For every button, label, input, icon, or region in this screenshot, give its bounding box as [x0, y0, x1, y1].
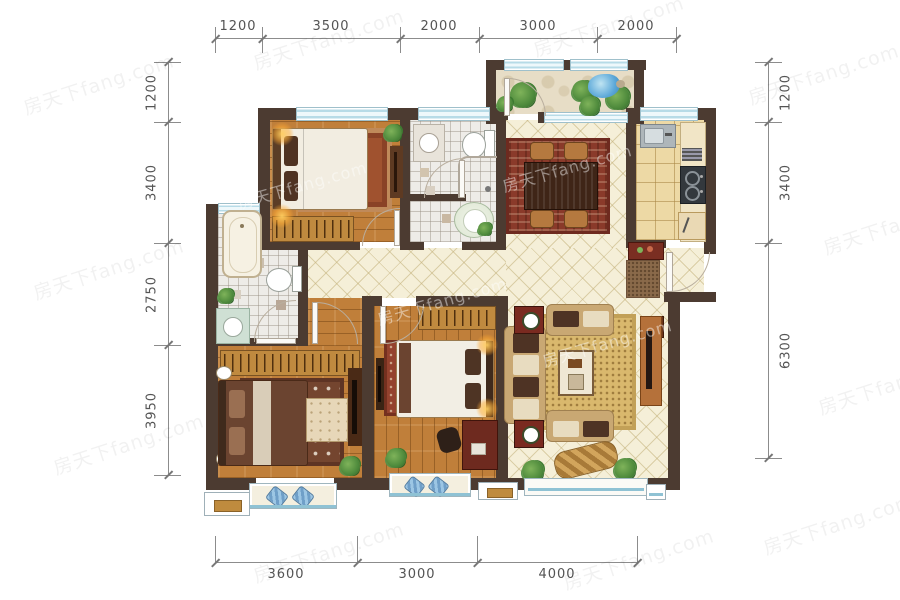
toilet-bowl: [266, 268, 292, 292]
lamp-icon: [522, 312, 540, 330]
tv-icon: [394, 152, 397, 192]
window-glass: [528, 488, 644, 491]
sink-counter: [216, 308, 250, 344]
bed-runner: [253, 381, 271, 465]
sofa-cushion: [553, 311, 579, 327]
plant-icon: [340, 456, 360, 476]
dining-chair: [530, 142, 554, 160]
stove-icon: [680, 166, 706, 204]
dimension-label: 2000: [409, 19, 469, 34]
dimension-label: 2750: [145, 273, 160, 317]
lamp-glow-icon: [270, 204, 294, 228]
watermark: 房天下fang.com: [250, 514, 408, 588]
dimension-label: 1200: [208, 19, 268, 34]
bathtub: [222, 210, 262, 278]
window-glass: [649, 493, 663, 496]
sink-basin-icon: [223, 317, 243, 337]
burner-icon: [685, 171, 700, 186]
ac-unit-icon: [214, 500, 242, 512]
dimension-label: 3400: [145, 161, 160, 205]
bed-pillow: [229, 390, 245, 418]
wall: [206, 204, 218, 490]
floor-plan-image: 1200 3500 2000 3000 2000 3600 3000 4000 …: [0, 0, 900, 600]
dimension-line: [168, 62, 169, 476]
watermark: 房天下fang.com: [815, 346, 900, 420]
sink-counter: [413, 124, 445, 162]
plant-icon: [614, 458, 636, 480]
plant-icon: [386, 448, 406, 468]
window: [296, 107, 388, 121]
bed-pillow: [229, 427, 245, 455]
lamp-glow-icon: [476, 334, 498, 356]
faucet-icon: [665, 133, 672, 136]
burner-icon: [685, 186, 700, 201]
ac-unit-icon: [487, 488, 513, 498]
toilet-tank: [292, 266, 302, 292]
rock-icon: [616, 80, 625, 88]
dresser: [390, 146, 403, 198]
bed: [218, 380, 308, 466]
sofa-loveseat: [546, 410, 614, 442]
plant-icon: [218, 288, 234, 304]
lamp-icon: [522, 426, 540, 444]
sofa-main: [504, 326, 546, 424]
watermark: 房天下fang.com: [560, 521, 718, 595]
sofa-cushion: [583, 311, 609, 327]
window-sill: [524, 478, 648, 496]
bath-accent-tile: [420, 168, 429, 177]
bed-foot-blanket: [399, 343, 411, 413]
window: [504, 59, 564, 71]
bay-window-glass: [250, 505, 336, 508]
sink-basin-icon: [419, 133, 439, 153]
lamp-glow-icon: [270, 122, 294, 146]
dish-rack-icon: [682, 148, 702, 161]
table-decor: [568, 374, 584, 390]
sink-basin: [644, 128, 664, 144]
sofa-cushion: [553, 421, 579, 437]
knob-icon: [700, 190, 703, 193]
dining-chair: [564, 210, 588, 228]
watermark: 房天下fang.com: [820, 186, 900, 260]
bed-headboard: [219, 381, 226, 465]
wall: [462, 242, 506, 250]
lamp-glow-icon: [476, 398, 498, 420]
bed-seam: [303, 129, 304, 209]
sofa-cushion: [513, 355, 539, 375]
wall: [206, 478, 256, 490]
bay-window-glass: [390, 493, 470, 496]
tv-icon: [352, 380, 357, 434]
dimension-label: 6300: [779, 329, 794, 373]
sofa-cushion: [583, 421, 609, 437]
dimension-label: 3000: [387, 567, 447, 582]
toilet-icon: [266, 264, 300, 292]
ac-platform: [204, 492, 250, 516]
paper-icon: [471, 443, 486, 455]
dining-chair: [530, 210, 554, 228]
plant-icon: [580, 96, 600, 116]
side-table: [514, 420, 544, 448]
plant-icon: [384, 124, 402, 142]
kitchen-sink-icon: [640, 124, 676, 148]
watermark: 房天下fang.com: [30, 231, 188, 305]
sofa-cushion: [513, 377, 539, 397]
tv-stand: [348, 368, 362, 446]
wall: [258, 242, 360, 250]
sofa-cushion: [513, 333, 539, 353]
bench: [306, 398, 348, 442]
sofa-cushion: [513, 399, 539, 419]
side-table: [514, 306, 544, 334]
drain-icon: [240, 224, 244, 228]
watermark: 房天下fang.com: [760, 486, 900, 560]
window: [640, 107, 698, 121]
ac-platform: [478, 482, 518, 500]
wall-tv: [376, 358, 384, 410]
tv-icon: [378, 366, 381, 402]
nightstand: [216, 366, 232, 380]
dimension-label: 3400: [779, 161, 794, 205]
watermark: 房天下fang.com: [50, 406, 208, 480]
corner-window: [646, 484, 666, 500]
garden-cluster: [572, 70, 632, 116]
knob-icon: [700, 175, 703, 178]
desk: [462, 420, 498, 470]
